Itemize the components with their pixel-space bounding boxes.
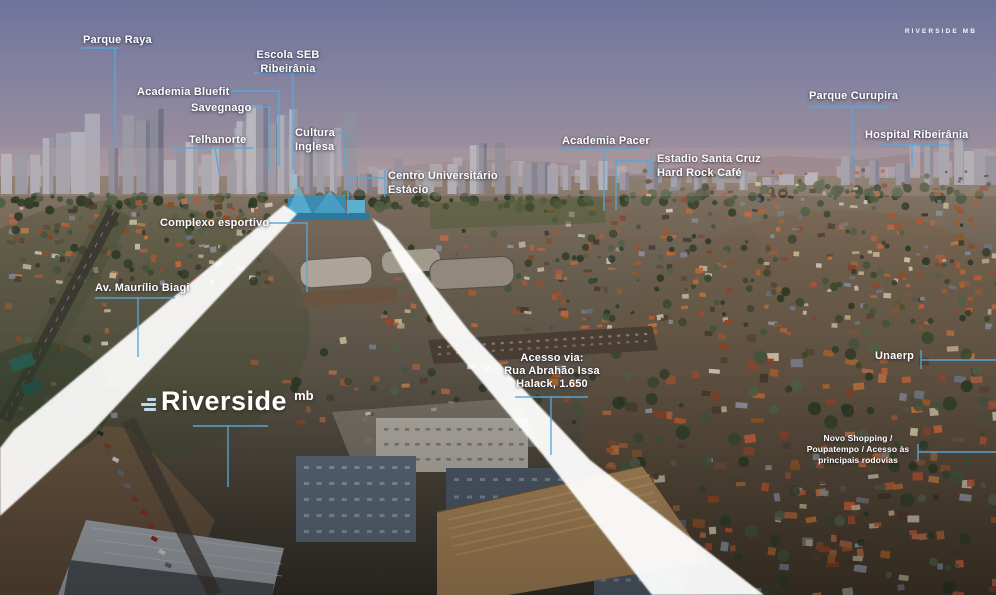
riverside-watermark: RIVERSIDE MB [905, 28, 977, 35]
callout-parque-raya: Parque Raya [83, 33, 152, 47]
leader-estacio [347, 170, 385, 214]
callout-label: Savegnago [191, 102, 252, 114]
callout-novo-shopping: Novo Shopping / Poupatempo / Acesso às p… [807, 433, 910, 466]
callout-savegnago: Savegnago [191, 101, 252, 115]
callout-hospital-ribeirania: Hospital Ribeirânia [865, 128, 968, 142]
leader-complexo-esportivo [269, 223, 308, 292]
callout-academia-pacer: Academia Pacer [562, 134, 650, 148]
callout-label: Estadio Santa Cruz Hard Rock Café [657, 153, 761, 179]
callout-telhanorte: Telhanorte [189, 133, 246, 147]
leader-parque-raya [81, 48, 118, 147]
leader-novo-shopping [918, 444, 996, 461]
riverside-logo-bars-icon [141, 398, 156, 411]
leader-acesso-via [515, 397, 588, 455]
callout-label: Cultura Inglesa [295, 127, 335, 153]
leader-escola-seb [254, 73, 317, 170]
leader-cultura-inglesa [337, 133, 345, 172]
riverside-logo-text: Riverside [161, 388, 287, 415]
leader-estadio-santa-cruz [615, 154, 651, 210]
riverside-logo-suffix: mb [294, 389, 314, 402]
callout-label: Telhanorte [189, 134, 246, 146]
callout-label: Academia Bluefit [137, 86, 229, 98]
callout-unaerp: Unaerp [875, 349, 914, 363]
callout-acesso-via: Acesso via: Rua Abrahão Issa Halack, 1.6… [504, 352, 600, 391]
callout-av-maurilio-biagi: Av. Maurílio Biagi [95, 281, 190, 295]
callout-label: Escola SEB Ribeirânia [256, 49, 319, 75]
callout-escola-seb-ribeirania: Escola SEB Ribeirânia [256, 48, 319, 76]
callout-label: Parque Curupira [809, 90, 898, 102]
leader-riverside-building [193, 426, 268, 487]
callout-label: Novo Shopping / Poupatempo / Acesso às p… [807, 433, 910, 465]
callout-label: Av. Maurílio Biagi [95, 282, 190, 294]
callout-label: Centro Universitário Estácio [388, 170, 498, 196]
callout-label: Academia Pacer [562, 135, 650, 147]
callout-estadio-santa-cruz: Estadio Santa Cruz Hard Rock Café [657, 152, 761, 180]
callout-label: Parque Raya [83, 34, 152, 46]
callout-label: Complexo esportivo [160, 217, 269, 229]
riverside-logo: Riverside mb [141, 388, 314, 415]
callout-academia-bluefit: Academia Bluefit [137, 85, 229, 99]
callout-parque-curupira: Parque Curupira [809, 89, 898, 103]
leader-hospital-ribeirania [882, 145, 950, 167]
callout-label: Hospital Ribeirânia [865, 129, 968, 141]
callout-label: Unaerp [875, 350, 914, 362]
callout-label: Acesso via: Rua Abrahão Issa Halack, 1.6… [504, 352, 600, 390]
callout-centro-universitario-estacio: Centro Universitário Estácio [388, 169, 498, 197]
leader-academia-pacer [561, 149, 640, 211]
leader-unaerp [921, 350, 996, 369]
callout-cultura-inglesa: Cultura Inglesa [295, 126, 335, 154]
leader-savegnago [252, 107, 270, 172]
callout-complexo-esportivo: Complexo esportivo [160, 216, 269, 230]
aerial-marketing-image: Parque Raya Escola SEB Ribeirânia Academ… [0, 0, 996, 595]
leader-telhanorte [170, 148, 253, 178]
leader-av-maurilio-biagi [95, 298, 175, 357]
